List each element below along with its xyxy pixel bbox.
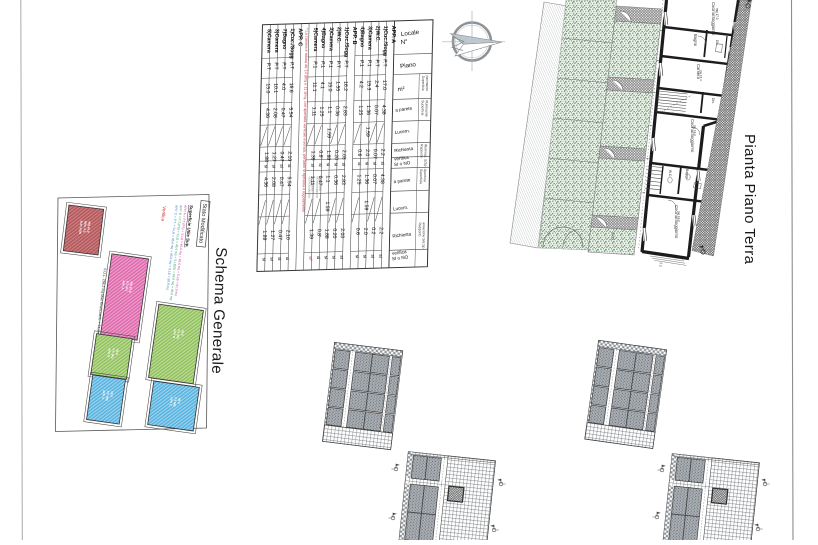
svg-text:P.T: P.T — [288, 62, 294, 69]
svg-text:59.9: 59.9 — [177, 398, 182, 405]
svg-text:0.6: 0.6 — [356, 149, 362, 156]
svg-text:si: si — [310, 163, 315, 166]
svg-text:Dis.: Dis. — [715, 40, 719, 46]
svg-text:0.47: 0.47 — [277, 230, 283, 240]
svg-text:Rapporto: Rapporto — [418, 222, 422, 236]
svg-text:si: si — [332, 256, 337, 259]
svg-text:si: si — [341, 163, 346, 166]
svg-text:si: si — [365, 162, 370, 165]
svg-text:si*: si* — [308, 256, 313, 261]
svg-text:1.59: 1.59 — [326, 128, 332, 138]
svg-text:APP. C: APP. C — [297, 28, 303, 46]
svg-text:si: si — [287, 164, 292, 167]
svg-text:1.36: 1.36 — [363, 174, 369, 184]
svg-text:4.36: 4.36 — [264, 108, 270, 118]
svg-text:2.03: 2.03 — [341, 150, 347, 160]
svg-text:0.36: 0.36 — [334, 106, 340, 116]
svg-text:Pianta Piano Terra: Pianta Piano Terra — [741, 134, 758, 265]
svg-text:2.08: 2.08 — [270, 177, 276, 187]
svg-text:P.T: P.T — [343, 60, 349, 67]
svg-text:si: si — [326, 163, 331, 166]
svg-text:0.2: 0.2 — [370, 227, 376, 234]
svg-text:P.T: P.T — [265, 63, 271, 70]
svg-text:0.8': 0.8' — [316, 229, 322, 237]
svg-text:P.T: P.T — [374, 59, 380, 66]
svg-text:si: si — [334, 163, 339, 166]
svg-text:si: si — [324, 256, 329, 259]
svg-text:3)Camera: 3)Camera — [366, 26, 372, 50]
svg-text:P.1: P.1 — [312, 61, 318, 68]
svg-text:4)Bagno: 4)Bagno — [359, 26, 365, 47]
svg-text:si: si — [264, 165, 269, 168]
svg-text:si: si — [380, 161, 385, 164]
svg-text:17.0: 17.0 — [381, 80, 387, 90]
svg-text:0.47: 0.47 — [279, 108, 285, 118]
svg-text:2.2: 2.2 — [378, 227, 384, 234]
svg-text:5)Camera: 5)Camera — [312, 28, 318, 52]
svg-text:1)Cuc./Sogg: 1)Cuc./Sogg — [343, 27, 350, 57]
svg-text:Superficie: Superficie — [420, 100, 424, 115]
svg-text:si: si — [370, 254, 375, 257]
svg-text:APP. B: APP. B — [351, 27, 357, 45]
svg-text:Bagno: Bagno — [693, 34, 698, 47]
svg-text:si: si — [271, 165, 276, 168]
svg-text:1.88: 1.88 — [261, 230, 267, 240]
svg-text:16.6: 16.6 — [288, 83, 294, 93]
svg-text:2.4: 2.4 — [373, 80, 379, 87]
svg-text:0.36: 0.36 — [332, 175, 338, 185]
svg-text:1.36: 1.36 — [365, 105, 371, 115]
svg-text:si: si — [378, 254, 383, 257]
svg-text:1.25: 1.25 — [356, 174, 362, 184]
svg-text:1.59: 1.59 — [363, 200, 369, 210]
svg-text:2.0: 2.0 — [362, 228, 368, 235]
svg-text:P.1: P.1 — [358, 60, 364, 67]
svg-text:0.47: 0.47 — [278, 151, 284, 161]
svg-text:P.1: P.1 — [319, 61, 325, 68]
svg-text:si: si — [262, 258, 267, 261]
svg-text:Superficie: Superficie — [419, 169, 423, 184]
svg-text:1.88: 1.88 — [325, 150, 331, 160]
svg-text:1.1: 1.1 — [326, 106, 332, 113]
svg-text:2)W.C.: 2)W.C. — [335, 27, 341, 44]
svg-text:si: si — [363, 255, 368, 258]
svg-text:4.38: 4.38 — [379, 174, 385, 184]
svg-text:5.54: 5.54 — [286, 176, 292, 186]
svg-text:2.83: 2.83 — [340, 175, 346, 185]
svg-text:15.0: 15.0 — [264, 83, 270, 93]
svg-text:1)Cuc./Sogg: 1)Cuc./Sogg — [289, 28, 296, 58]
svg-text:1.25: 1.25 — [318, 106, 324, 116]
svg-text:Illuminaz. S/Sp: Illuminaz. S/Sp — [423, 144, 427, 167]
svg-text:si: si — [269, 257, 274, 260]
svg-text:2.83: 2.83 — [342, 106, 348, 116]
svg-text:1.11: 1.11 — [310, 107, 316, 117]
svg-text:5.54: 5.54 — [287, 107, 293, 117]
svg-text:2.0: 2.0 — [364, 149, 370, 156]
svg-text:1.27: 1.27 — [271, 152, 277, 162]
svg-text:si: si — [316, 256, 321, 259]
svg-text:2.10: 2.10 — [286, 151, 292, 161]
svg-text:1.27: 1.27 — [269, 230, 275, 240]
svg-text:m²: m² — [397, 86, 405, 93]
svg-text:0.47: 0.47 — [278, 177, 284, 187]
svg-text:0.07: 0.07 — [371, 174, 377, 184]
svg-text:areazione S/a:Sp: areazione S/a:Sp — [421, 222, 425, 248]
svg-text:Superficie: Superficie — [421, 76, 425, 91]
svg-text:4.1: 4.1 — [319, 82, 325, 89]
svg-text:1.39: 1.39 — [308, 229, 314, 239]
svg-text:mq 16.2: mq 16.2 — [693, 125, 697, 136]
svg-text:4.0: 4.0 — [280, 83, 286, 90]
svg-text:7)Bagno: 7)Bagno — [281, 29, 287, 50]
svg-text:2.2: 2.2 — [379, 149, 385, 156]
svg-text:N°: N° — [400, 38, 408, 46]
svg-text:1.59: 1.59 — [364, 127, 370, 137]
svg-text:Apertura: Apertura — [423, 169, 427, 182]
svg-text:4)Bagno: 4)Bagno — [320, 27, 326, 48]
svg-text:0.07: 0.07 — [373, 105, 379, 115]
svg-text:15.0: 15.0 — [327, 82, 333, 92]
svg-text:MEZZANINE: MEZZANINE — [318, 176, 322, 191]
svg-text:si: si — [285, 257, 290, 260]
svg-text:8.60: 8.60 — [610, 232, 616, 241]
svg-text:P.T: P.T — [381, 59, 387, 66]
svg-text:2.03: 2.03 — [339, 228, 345, 238]
svg-text:2)W.C.: 2)W.C. — [374, 26, 380, 43]
svg-text:0.20: 0.20 — [331, 228, 337, 238]
svg-text:0.6: 0.6 — [354, 228, 360, 235]
svg-text:45.9: 45.9 — [180, 330, 185, 337]
svg-text:P.T: P.T — [273, 62, 279, 69]
svg-text:mq 16.6: mq 16.6 — [677, 211, 681, 222]
svg-text:4.36: 4.36 — [262, 177, 268, 187]
svg-text:16.2: 16.2 — [342, 81, 348, 91]
svg-text:Dis.: Dis. — [711, 98, 715, 104]
svg-text:si: si — [318, 163, 323, 166]
svg-text:11.1: 11.1 — [311, 82, 317, 92]
svg-text:APP. A: APP. A — [390, 25, 396, 43]
svg-text:si: si — [372, 162, 377, 165]
svg-text:Illuminante: Illuminante — [424, 100, 428, 117]
svg-text:P.1: P.1 — [327, 61, 333, 68]
svg-text:si: si — [279, 164, 284, 167]
svg-text:P.1: P.1 — [366, 60, 372, 67]
svg-text:mq 17.0: mq 17.0 — [715, 8, 719, 20]
svg-text:5)Camera: 5)Camera — [265, 29, 271, 53]
svg-text:Rapporto: Rapporto — [419, 144, 423, 158]
svg-text:si: si — [355, 255, 360, 258]
svg-text:mq 15.3: mq 15.3 — [699, 70, 703, 81]
svg-text:0.07: 0.07 — [372, 149, 378, 159]
svg-text:1.88: 1.88 — [263, 152, 269, 162]
svg-text:0.20: 0.20 — [333, 150, 339, 160]
svg-text:1.25: 1.25 — [357, 105, 363, 115]
svg-text:si: si — [339, 255, 344, 258]
svg-text:3)Camera: 3)Camera — [328, 27, 334, 51]
svg-text:pavimento: pavimento — [425, 75, 429, 91]
svg-text:P.T: P.T — [280, 62, 286, 69]
svg-text:W.C.: W.C. — [668, 170, 672, 177]
svg-text:4.38: 4.38 — [380, 105, 386, 115]
svg-text:2.10: 2.10 — [284, 230, 290, 240]
svg-text:1.59: 1.59 — [324, 201, 330, 211]
svg-text:15.3: 15.3 — [365, 80, 371, 90]
svg-text:1.55: 1.55 — [334, 81, 340, 91]
svg-text:1.88: 1.88 — [323, 229, 329, 239]
svg-text:si: si — [357, 162, 362, 165]
svg-text:59.9: 59.9 — [109, 391, 114, 398]
svg-text:0.8': 0.8' — [317, 150, 323, 158]
svg-text:1)Cuc./Sogg: 1)Cuc./Sogg — [382, 26, 389, 56]
svg-text:10.1: 10.1 — [272, 83, 278, 93]
svg-text:P.T: P.T — [335, 61, 341, 68]
svg-text:3)Camera: 3)Camera — [273, 29, 279, 53]
svg-text:45.9: 45.9 — [115, 349, 120, 356]
svg-text:1.1: 1.1 — [324, 175, 330, 182]
svg-text:2.08: 2.08 — [272, 108, 278, 118]
svg-text:1.39: 1.39 — [310, 151, 316, 161]
svg-text:MEZZANINE: MEZZANINE — [310, 176, 314, 191]
svg-text:si: si — [277, 257, 282, 260]
svg-text:4.2: 4.2 — [358, 81, 364, 88]
svg-text:3.5: 3.5 — [658, 262, 663, 267]
